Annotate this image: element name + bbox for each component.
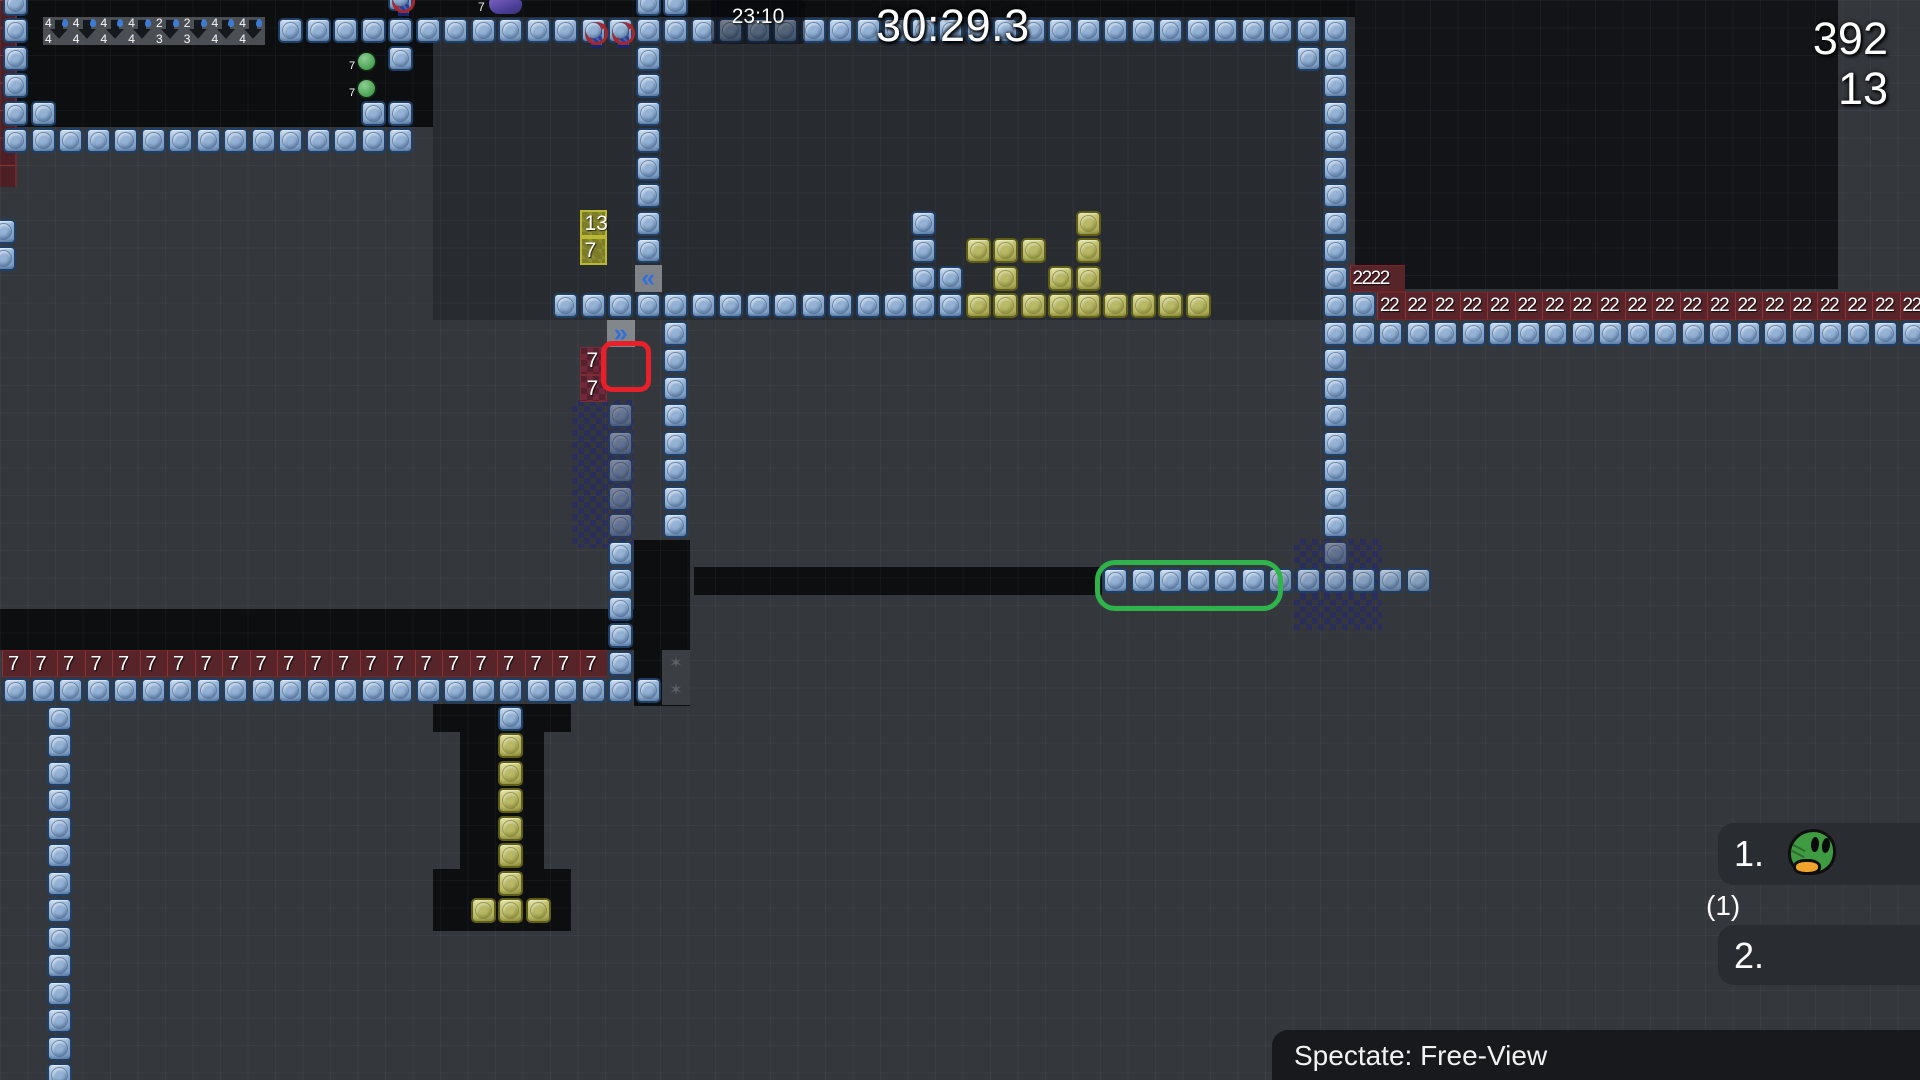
hazard-tile-7: 7 (525, 650, 553, 678)
blue-block (471, 18, 496, 43)
leaderboard-rank-2: 2. (1734, 935, 1764, 977)
blue-block (636, 128, 661, 153)
blue-block (251, 678, 276, 703)
hazard-tile-7: 7 (57, 650, 85, 678)
blue-block (86, 678, 111, 703)
blue-block (47, 898, 72, 923)
blue-block (608, 596, 633, 621)
blue-block (1296, 18, 1321, 43)
blue-block (361, 128, 386, 153)
ghost-blue-block (608, 431, 633, 456)
yellow-block (966, 238, 991, 263)
blue-block (1323, 46, 1348, 71)
blue-block (1681, 321, 1706, 346)
blue-block (773, 293, 798, 318)
blue-block (1323, 486, 1348, 511)
yellow-block (1021, 238, 1046, 263)
blue-block (911, 266, 936, 291)
blue-block (388, 101, 413, 126)
blue-block (1268, 18, 1293, 43)
yellow-block (1186, 293, 1211, 318)
hazard-tile-7: 7 (305, 650, 333, 678)
blue-block (168, 128, 193, 153)
counters: 392 13 (1813, 14, 1888, 114)
yellow-block (498, 788, 523, 813)
blue-block (801, 293, 826, 318)
blue-block (1653, 321, 1678, 346)
hazard-tile-7: 7 (415, 650, 443, 678)
blue-block (251, 128, 276, 153)
blue-block (333, 678, 358, 703)
hazard-tile-2: 22 (1817, 292, 1845, 320)
droplet-icon (117, 19, 123, 27)
blue-block (1433, 321, 1458, 346)
blue-block (58, 128, 83, 153)
hazard-tile-2: 22 (1900, 292, 1920, 320)
blue-block (416, 18, 441, 43)
no-entry-block (581, 18, 606, 43)
game-viewport[interactable]: 4444444423234444777777777777777777777722… (0, 0, 1920, 1080)
dim-blue-block (1378, 568, 1403, 593)
hazard-tile-2: 22 (1405, 292, 1433, 320)
leaderboard-row-2: 2. (1718, 925, 1920, 985)
yellow-block (1021, 293, 1046, 318)
blue-block (608, 678, 633, 703)
no-entry-icon (392, 0, 409, 7)
blue-block (3, 678, 28, 703)
blue-block (388, 678, 413, 703)
game-clock: 23:10 (711, 0, 805, 44)
blue-block (1873, 321, 1898, 346)
blue-block (361, 101, 386, 126)
yellow-block (966, 293, 991, 318)
counter-primary: 392 (1813, 14, 1888, 64)
blue-block (196, 128, 221, 153)
blue-block (1323, 101, 1348, 126)
region-corridor (694, 567, 1102, 595)
hazard-tile-2: 22 (1680, 292, 1708, 320)
dim-blue-block (1323, 568, 1348, 593)
hazard-tile-2: 22 (1542, 292, 1570, 320)
hazard-tile-7: 7 (277, 650, 305, 678)
blue-block (608, 651, 633, 676)
no-entry-block (608, 18, 633, 43)
hazard-tile-7: 7 (332, 650, 360, 678)
hazard-tile-7: 7 (112, 650, 140, 678)
hazard-tile-7: 7 (140, 650, 168, 678)
yellow-block (1048, 293, 1073, 318)
blue-block (3, 101, 28, 126)
blue-block (1736, 321, 1761, 346)
player-dot-green: 7 (358, 80, 375, 97)
blue-block (718, 293, 743, 318)
hazard-tile-7: 7 (552, 650, 580, 678)
yellow-block (1076, 211, 1101, 236)
blue-block (663, 376, 688, 401)
blue-block (47, 981, 72, 1006)
blue-block (416, 678, 441, 703)
run-timer: 30:29.3 (876, 0, 1030, 52)
blue-block (663, 321, 688, 346)
blue-block (1626, 321, 1651, 346)
blue-block (581, 293, 606, 318)
ghost-blue-block (1323, 541, 1348, 566)
blue-block (388, 18, 413, 43)
yellow-block (1103, 293, 1128, 318)
spawn-checker-zone (1294, 594, 1382, 630)
blue-block (1323, 376, 1348, 401)
conveyor-chevron-tile: « (635, 265, 663, 293)
blue-block (1103, 18, 1128, 43)
blue-block (1323, 348, 1348, 373)
blue-block (1323, 266, 1348, 291)
blue-block (663, 486, 688, 511)
blue-block (223, 678, 248, 703)
blue-block (553, 678, 578, 703)
blue-block (663, 293, 688, 318)
hazard-tile-2: 22 (1762, 292, 1790, 320)
blue-block (1791, 321, 1816, 346)
blue-block (1323, 18, 1348, 43)
spectate-mode-bar: Spectate: Free-View (1272, 1030, 1920, 1080)
blue-block (1846, 321, 1871, 346)
blue-block (1543, 321, 1568, 346)
star-tile: ✶ (662, 677, 690, 705)
down-arrow-icon: 44 (99, 17, 127, 45)
blue-block (1131, 18, 1156, 43)
droplet-icon (256, 19, 262, 27)
game-clock-text: 23:10 (732, 5, 785, 28)
blue-block (828, 18, 853, 43)
leaderboard-row-1: 1. (1718, 823, 1920, 885)
blue-block (1763, 321, 1788, 346)
blue-block (333, 18, 358, 43)
leaderboard-subcount: (1) (1706, 890, 1740, 922)
blue-block (1323, 156, 1348, 181)
blue-block (883, 293, 908, 318)
blue-block (526, 678, 551, 703)
blue-block (663, 0, 688, 16)
ghost-blue-block (608, 458, 633, 483)
ghost-blue-block (608, 403, 633, 428)
hazard-tile-2: 22 (1707, 292, 1735, 320)
blue-block (333, 128, 358, 153)
hazard-tile-7: 7 (195, 650, 223, 678)
hazard-tile-7: 7 (167, 650, 195, 678)
blue-block (141, 128, 166, 153)
finish-row-outline (1095, 560, 1283, 611)
blue-block (3, 0, 28, 16)
blue-block (1186, 18, 1211, 43)
blue-block (1818, 321, 1843, 346)
yellow-block (498, 843, 523, 868)
blue-block (1351, 293, 1376, 318)
ghost-blue-block (608, 486, 633, 511)
blue-block (663, 348, 688, 373)
hazard-tile-7: 7 (497, 650, 525, 678)
blue-block (1488, 321, 1513, 346)
no-entry-icon (612, 22, 629, 39)
blue-block (58, 678, 83, 703)
droplet-icon (201, 19, 207, 27)
hazard-tile-2: 22 (1460, 292, 1488, 320)
blue-block (911, 211, 936, 236)
blue-block (691, 293, 716, 318)
yellow-block (993, 238, 1018, 263)
blue-block (608, 623, 633, 648)
blue-block (1323, 513, 1348, 538)
yellow-block (1076, 293, 1101, 318)
duck-beak (1793, 859, 1821, 875)
yellow-block (1076, 238, 1101, 263)
down-arrow-icon: 23 (154, 17, 182, 45)
leaderboard-rank-1: 1. (1734, 833, 1764, 875)
hazard-box-2222: 2222 (1350, 265, 1405, 293)
hazard-tile-2: 22 (1515, 292, 1543, 320)
hazard-tile-2: 22 (1735, 292, 1763, 320)
blue-block (47, 1008, 72, 1033)
hazard-tile-7: 7 (30, 650, 58, 678)
region-room-right (1355, 0, 1838, 289)
down-arrow-icon: 44 (43, 17, 71, 45)
blue-block (361, 18, 386, 43)
blue-block (746, 293, 771, 318)
blue-block (663, 403, 688, 428)
hazard-tile-2: 22 (1845, 292, 1873, 320)
blue-block (1571, 321, 1596, 346)
yellow-block (498, 733, 523, 758)
droplet-icon (145, 19, 151, 27)
blue-block (86, 128, 111, 153)
yellow-block (526, 898, 551, 923)
checkpoint-tile: 13 (580, 210, 608, 238)
blue-block (47, 843, 72, 868)
blue-block (47, 788, 72, 813)
selected-tile-outline (601, 341, 651, 392)
down-arrow-icon: 44 (210, 17, 238, 45)
yellow-block (1131, 293, 1156, 318)
blue-block (443, 18, 468, 43)
blue-block (636, 678, 661, 703)
blue-block (168, 678, 193, 703)
blue-block (141, 678, 166, 703)
blue-block (1323, 458, 1348, 483)
blue-block (1598, 321, 1623, 346)
blue-block (3, 18, 28, 43)
blue-block (1323, 211, 1348, 236)
blue-block (1158, 18, 1183, 43)
dim-blue-block (1351, 568, 1376, 593)
blue-block (636, 0, 661, 16)
blue-block (47, 871, 72, 896)
blue-block (443, 678, 468, 703)
blue-block (911, 238, 936, 263)
down-arrow-icon: 23 (182, 17, 210, 45)
hazard-tile-2: 22 (1432, 292, 1460, 320)
blue-block (498, 18, 523, 43)
yellow-block (993, 266, 1018, 291)
blue-block (856, 293, 881, 318)
blue-block (306, 128, 331, 153)
no-entry-icon (585, 22, 602, 39)
down-arrow-icon: 44 (237, 17, 265, 45)
yellow-block (1048, 266, 1073, 291)
blue-block (278, 128, 303, 153)
blue-block (47, 761, 72, 786)
hazard-tile-7: 7 (85, 650, 113, 678)
blue-block (636, 183, 661, 208)
star-tile: ✶ (662, 650, 690, 678)
blue-block (608, 541, 633, 566)
blue-block (636, 211, 661, 236)
hazard-tile-2: 22 (1652, 292, 1680, 320)
creature-sprite: 7 (489, 0, 522, 14)
blue-block (223, 128, 248, 153)
blue-block (1241, 18, 1266, 43)
blue-block (553, 18, 578, 43)
ghost-blue-block (608, 513, 633, 538)
yellow-block (498, 816, 523, 841)
blue-block (278, 18, 303, 43)
hazard-tile-7: 7 (222, 650, 250, 678)
blue-block (361, 678, 386, 703)
blue-block (47, 926, 72, 951)
blue-block (1213, 18, 1238, 43)
yellow-block (498, 898, 523, 923)
hazard-tile-7: 7 (442, 650, 470, 678)
blue-block (388, 46, 413, 71)
blue-block (306, 18, 331, 43)
blue-block (47, 1036, 72, 1061)
blue-block (47, 816, 72, 841)
hazard-tile-2: 22 (1625, 292, 1653, 320)
region-room-central (433, 17, 1323, 320)
blue-block (663, 431, 688, 456)
blue-block (1901, 321, 1920, 346)
blue-block (1323, 403, 1348, 428)
blue-block (581, 678, 606, 703)
blue-block (636, 73, 661, 98)
blue-block (47, 706, 72, 731)
blue-block (938, 293, 963, 318)
hazard-tile-7: 7 (470, 650, 498, 678)
yellow-block (1076, 266, 1101, 291)
player-dot-green: 7 (358, 53, 375, 70)
blue-block (608, 293, 633, 318)
blue-block (1708, 321, 1733, 346)
blue-block (1323, 183, 1348, 208)
blue-block (0, 219, 16, 244)
hazard-tile-2: 22 (1790, 292, 1818, 320)
blue-block (663, 18, 688, 43)
blue-block (31, 128, 56, 153)
blue-block (1516, 321, 1541, 346)
blue-block (636, 101, 661, 126)
tile-map: 4444444423234444777777777777777777777722… (0, 0, 1920, 1080)
hazard-tile-7: 7 (360, 650, 388, 678)
blue-block (1076, 18, 1101, 43)
blue-block (636, 238, 661, 263)
blue-block (47, 733, 72, 758)
blue-block (278, 678, 303, 703)
blue-block (526, 18, 551, 43)
hazard-tile-7: 7 (580, 650, 608, 678)
blue-block (471, 678, 496, 703)
blue-block (636, 18, 661, 43)
blue-block (113, 678, 138, 703)
yellow-block (498, 761, 523, 786)
droplet-icon (62, 19, 68, 27)
region-strip-left (0, 609, 634, 650)
dim-blue-block (1296, 568, 1321, 593)
blue-block (1323, 238, 1348, 263)
blue-block (113, 128, 138, 153)
hazard-tile-7: 7 (387, 650, 415, 678)
blue-block (1323, 73, 1348, 98)
no-entry-block (388, 0, 413, 11)
blue-block (636, 156, 661, 181)
blue-block (3, 46, 28, 71)
blue-block (553, 293, 578, 318)
blue-block (1406, 321, 1431, 346)
hazard-tile-7: 7 (250, 650, 278, 678)
hazard-tile-2: 22 (1487, 292, 1515, 320)
blue-block (1323, 431, 1348, 456)
blue-block (911, 293, 936, 318)
checkpoint-tile: 7 (580, 237, 608, 265)
yellow-block (993, 293, 1018, 318)
blue-block (938, 266, 963, 291)
droplet-icon (228, 19, 234, 27)
blue-block (636, 46, 661, 71)
blue-block (828, 293, 853, 318)
counter-secondary: 13 (1813, 64, 1888, 114)
arrow-strip: 4444444423234444 (43, 17, 265, 45)
blue-block (31, 678, 56, 703)
blue-block (3, 128, 28, 153)
duck-avatar-icon (1786, 829, 1840, 879)
blue-block (1323, 293, 1348, 318)
blue-block (636, 293, 661, 318)
blue-block (663, 513, 688, 538)
blue-block (608, 568, 633, 593)
blue-block (498, 678, 523, 703)
hazard-tile-2: 22 (1872, 292, 1900, 320)
blue-block (663, 458, 688, 483)
spectate-mode-label: Spectate: Free-View (1294, 1040, 1547, 1071)
yellow-block (1158, 293, 1183, 318)
yellow-block (498, 871, 523, 896)
blue-block (47, 1063, 72, 1080)
blue-block (196, 678, 221, 703)
blue-block (1296, 46, 1321, 71)
hazard-tile-2: 22 (1597, 292, 1625, 320)
blue-block (1323, 321, 1348, 346)
blue-block (1351, 321, 1376, 346)
blue-block (0, 246, 16, 271)
blue-block (306, 678, 331, 703)
blue-block (1461, 321, 1486, 346)
down-arrow-icon: 44 (126, 17, 154, 45)
blue-block (1378, 321, 1403, 346)
down-arrow-icon: 44 (71, 17, 99, 45)
hazard-tile-7: 7 (2, 650, 30, 678)
hazard-tile-2: 22 (1377, 292, 1405, 320)
hazard-tile-2: 22 (1570, 292, 1598, 320)
yellow-block (471, 898, 496, 923)
blue-block (1048, 18, 1073, 43)
blue-block (3, 73, 28, 98)
